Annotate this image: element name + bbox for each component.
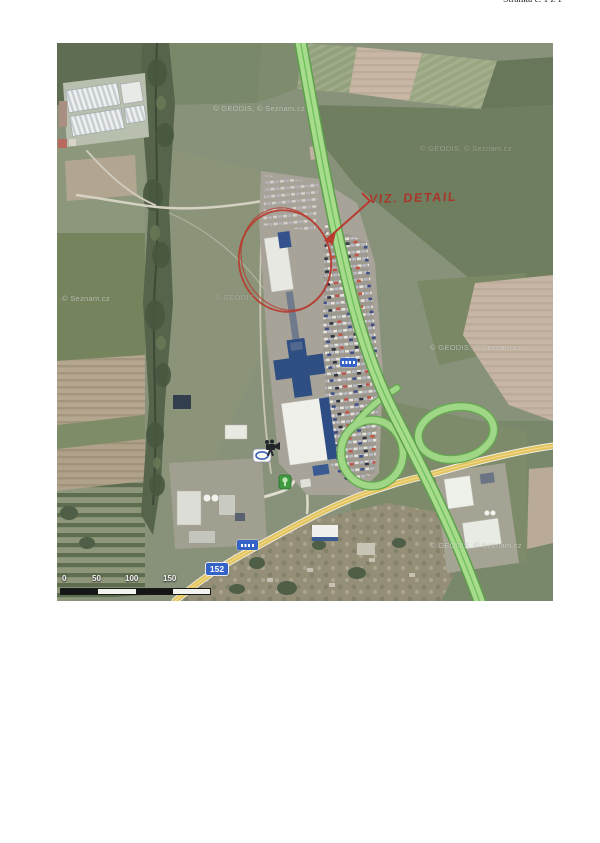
printed-page: { "page": { "header_text": "Stránka č. 1… [0,0,600,843]
map-scale-bar: 0 50 100 150 [59,575,213,597]
page-number-label: Stránka č. 1 z 1 [442,0,562,5]
town-sign-icon [237,540,258,550]
page-header: Stránka č. 1 z 1 [442,0,562,6]
scale-label: 100 [125,575,138,583]
scale-label: 0 [62,575,66,583]
mall-sign-icon [340,358,357,367]
road-number-badge: 152 [205,562,229,576]
scale-label: 150 [163,575,176,583]
scale-label: 50 [92,575,101,583]
aerial-photo-graphics [57,43,553,601]
greenhouse-complex [58,73,149,148]
aerial-map-image: © GEODIS, © Seznam.cz © GEODIS, © Seznam… [57,43,553,601]
park-poi-icon [279,475,291,489]
scale-bar-segments [60,588,211,595]
annotation-label: VIZ. DETAIL [368,190,457,206]
